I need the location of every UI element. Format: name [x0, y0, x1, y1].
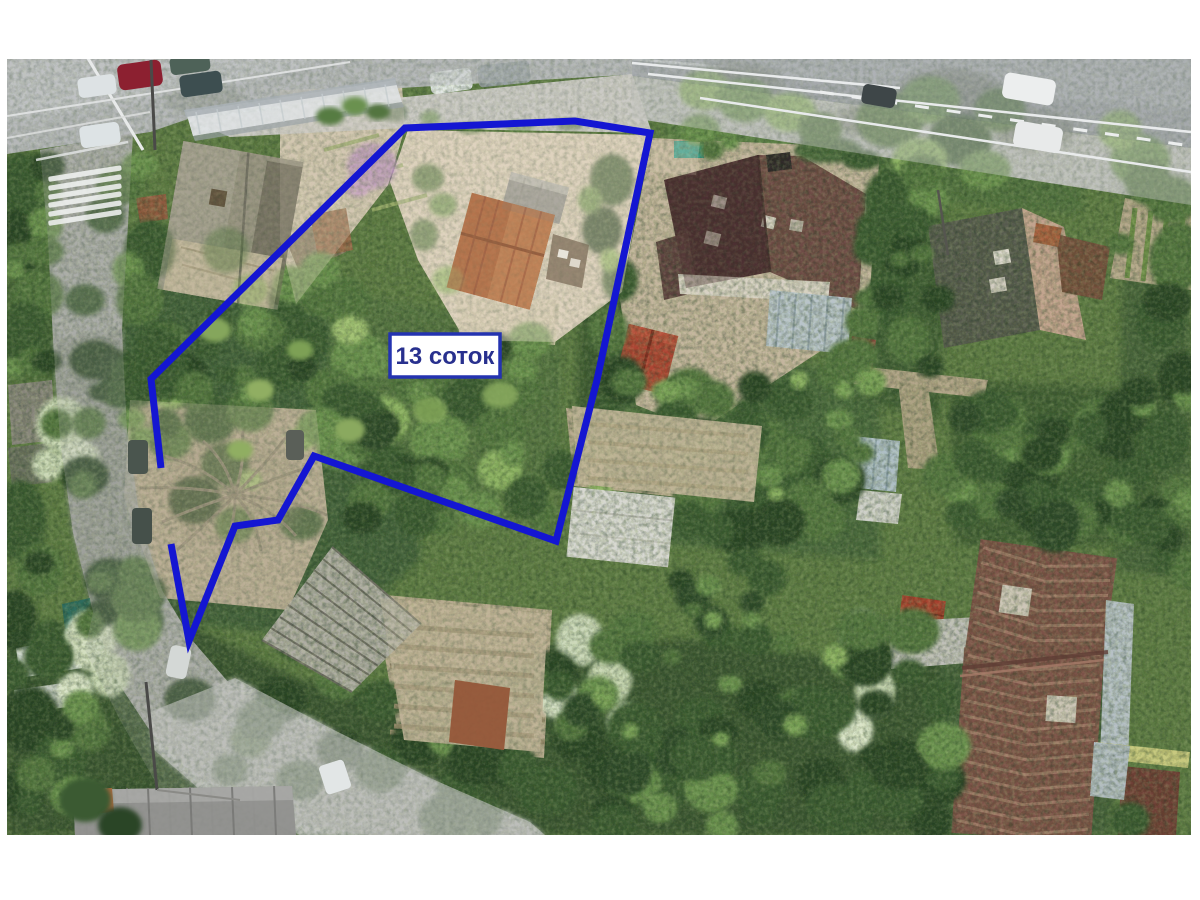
svg-text:13 соток: 13 соток	[396, 343, 496, 370]
